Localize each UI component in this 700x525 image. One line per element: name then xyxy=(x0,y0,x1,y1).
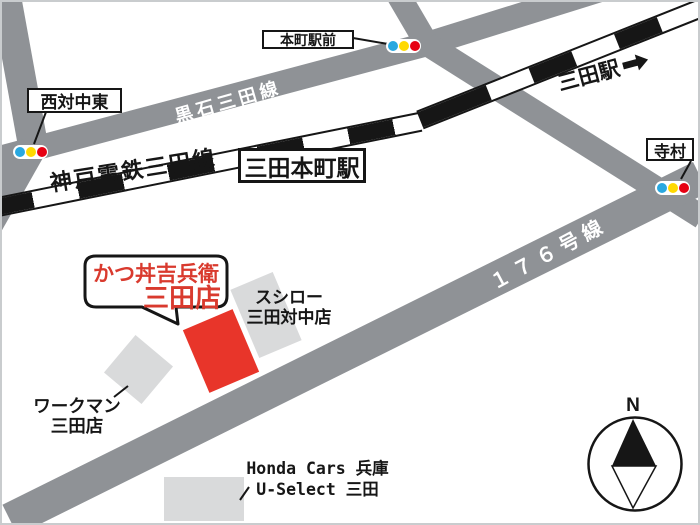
sushiro-label-line2: 三田対中店 xyxy=(240,308,338,328)
honda-building xyxy=(164,477,244,521)
road-north-south-upper xyxy=(0,0,48,148)
compass-north-label: N xyxy=(626,395,640,417)
signal-yellow-dot xyxy=(399,41,409,51)
store-name-line2: 三田店 xyxy=(85,278,221,315)
traffic-light-icon-nishitai xyxy=(13,145,48,159)
traffic-light-icon-honmachi xyxy=(386,39,421,53)
label-box-teramura: 寺村 xyxy=(646,138,694,161)
right-arrow-icon xyxy=(620,50,650,75)
signal-blue-dot xyxy=(15,147,25,157)
workman-label: ワークマン 三田店 xyxy=(26,396,128,436)
workman-label-line1: ワークマン xyxy=(26,396,128,416)
label-box-honmachi-ekimae: 本町駅前 xyxy=(262,30,354,49)
compass-icon xyxy=(589,418,682,511)
label-box-sanda-honmachi-station: 三田本町駅 xyxy=(238,148,366,183)
workman-building xyxy=(104,335,173,404)
kuroishi-road-label: 黒石三田線 xyxy=(172,73,285,128)
signal-blue-dot xyxy=(657,183,667,193)
signal-red-dot xyxy=(410,41,420,51)
traffic-light-icon-teramura xyxy=(655,181,690,195)
signal-yellow-dot xyxy=(26,147,36,157)
honda-label: Honda Cars 兵庫 U-Select 三田 xyxy=(240,459,395,500)
honda-label-line1: Honda Cars 兵庫 xyxy=(240,459,395,480)
workman-label-line2: 三田店 xyxy=(26,416,128,436)
route-176-label: １７６号線 xyxy=(484,209,612,296)
map-canvas: 黒石三田線 １７６号線 神戸電鉄三田線 三田駅 西対中東 本町駅前 三田本町駅 … xyxy=(0,0,700,525)
signal-red-dot xyxy=(37,147,47,157)
south-arrow-icon xyxy=(612,466,656,508)
honda-label-line2: U-Select 三田 xyxy=(240,480,395,501)
sushiro-label-line1: スシロー xyxy=(240,288,338,308)
sushiro-label: スシロー 三田対中店 xyxy=(240,288,338,327)
signal-blue-dot xyxy=(388,41,398,51)
signal-yellow-dot xyxy=(668,183,678,193)
signal-red-dot xyxy=(679,183,689,193)
label-box-nishitainakahigashi: 西対中東 xyxy=(27,88,122,113)
north-arrow-icon xyxy=(612,419,656,466)
